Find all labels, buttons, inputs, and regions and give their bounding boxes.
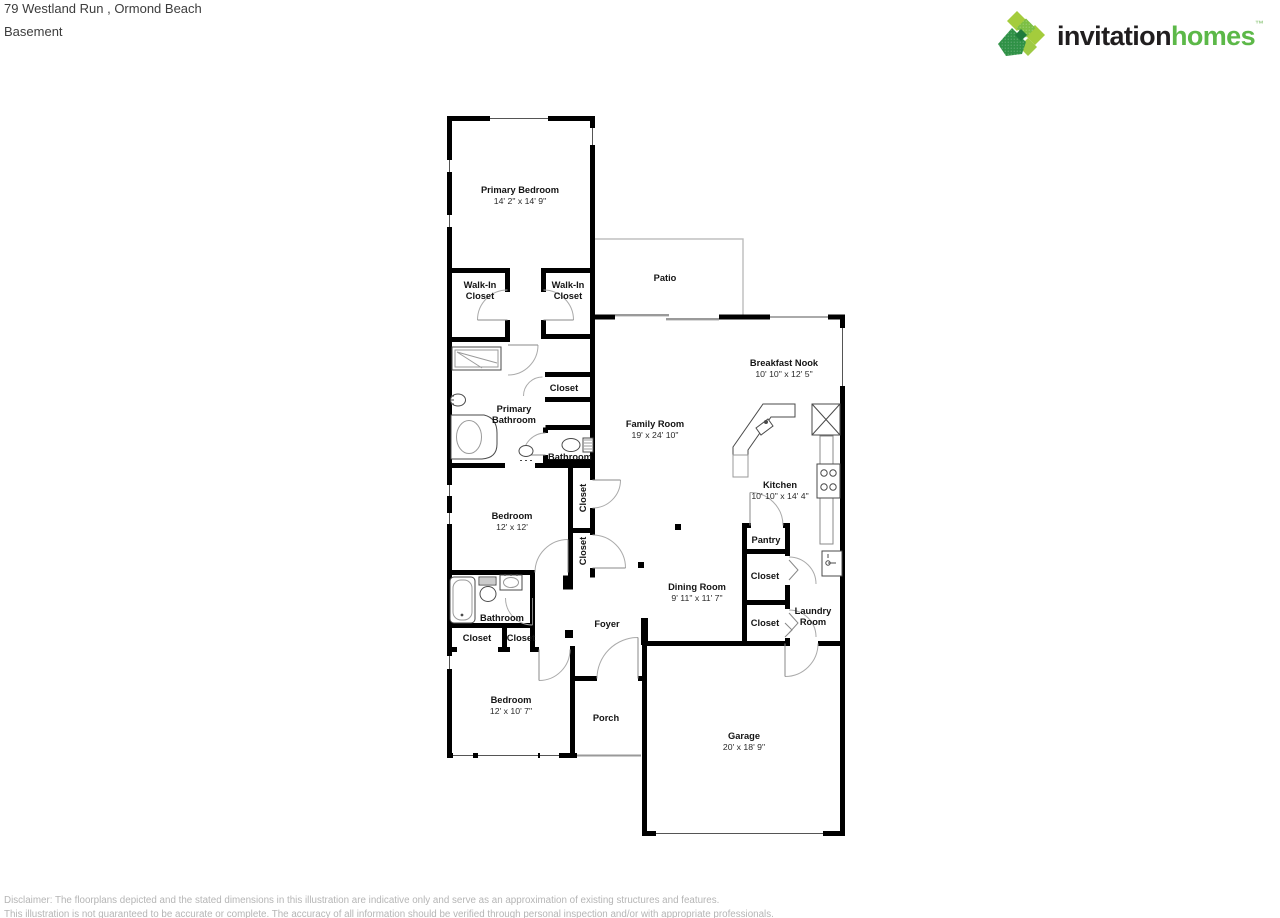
label-dining-room: Dining Room [668,582,726,592]
refrigerator-icon [812,404,840,435]
label-bedroom-lower: Bedroom [491,695,532,705]
invitation-homes-wordmark: invitationhomes™ [1057,19,1264,52]
label-bedroom-lower-dims: 12' x 10' 7" [490,706,532,716]
label-patio: Patio [654,273,677,283]
label-family-room-dims: 19' x 24' 10" [632,430,679,440]
disclaimer: Disclaimer: The floorplans depicted and … [4,894,1274,918]
label-walk-in-closet-left: Walk-In [464,280,497,290]
utility-sink-icon [822,551,842,576]
toilet-icon [562,438,593,452]
label-closet-right-lower: Closet [751,618,779,628]
label-pantry: Pantry [752,535,782,545]
label-laundry-room: Laundry [795,606,833,616]
stove-icon [817,464,840,498]
walls [447,116,845,836]
label-primary-bedroom-dims: 14' 2" x 14' 9" [494,196,546,206]
disclaimer-line-2: This illustration is not guaranteed to b… [4,908,1274,918]
label-primary-bedroom: Primary Bedroom [481,185,559,195]
label-closet-bottom-left: Closet [463,633,491,643]
toilet-icon [479,577,496,602]
label-breakfast-nook: Breakfast Nook [750,358,819,368]
label-garage: Garage [728,731,760,741]
sink-icon [500,574,522,590]
sink-icon [519,446,533,457]
label-primary-bathroom-2: Bathroom [492,415,536,425]
invitation-homes-logo-icon [995,8,1047,62]
label-closet-vertical-upper: Closet [578,484,588,512]
label-walk-in-closet-left-2: Closet [466,291,494,301]
label-kitchen: Kitchen [763,480,797,490]
label-garage-dims: 20' x 18' 9" [723,742,765,752]
label-walk-in-closet-right-2: Closet [554,291,582,301]
label-hall-bathroom: Bathroom [548,452,592,462]
shower [452,347,501,370]
kitchen-counter [733,404,795,477]
label-lower-bathroom: Bathroom [480,613,524,623]
label-closet-vertical-lower: Closet [578,537,588,565]
label-primary-bathroom: Primary [497,404,532,414]
disclaimer-line-1: Disclaimer: The floorplans depicted and … [4,894,1274,908]
label-hall-closet: Closet [550,383,578,393]
property-address: 79 Westland Run , Ormond Beach [4,0,202,16]
label-breakfast-nook-dims: 10' 10" x 12' 5" [755,369,812,379]
floor-plan-drawing: Primary Bedroom 14' 2" x 14' 9" Walk-In … [438,104,852,844]
label-foyer: Foyer [594,619,620,629]
label-family-room: Family Room [626,419,684,429]
invitation-homes-logo: invitationhomes™ [995,8,1264,62]
corner-tub [451,415,497,459]
label-kitchen-dims: 10' 10" x 14' 4" [751,491,808,501]
label-bedroom-middle-dims: 12' x 12' [496,522,528,532]
trademark-symbol: ™ [1255,19,1264,29]
bathtub-icon [450,577,475,623]
label-dining-room-dims: 9' 11" x 11' 7" [671,593,722,603]
label-walk-in-closet-right: Walk-In [552,280,585,290]
floor-plan: Primary Bedroom 14' 2" x 14' 9" Walk-In … [438,104,852,844]
label-porch: Porch [593,713,620,723]
label-closet-right-upper: Closet [751,571,779,581]
label-closet-bottom-right: Closet [507,633,535,643]
header: 79 Westland Run , Ormond Beach Basement [4,0,202,39]
label-bedroom-middle: Bedroom [492,511,533,521]
wordmark-invitation: invitation [1057,21,1171,51]
wordmark-homes: homes [1171,21,1255,51]
plan-level-label: Basement [4,24,202,39]
label-laundry-room-2: Room [800,617,826,627]
